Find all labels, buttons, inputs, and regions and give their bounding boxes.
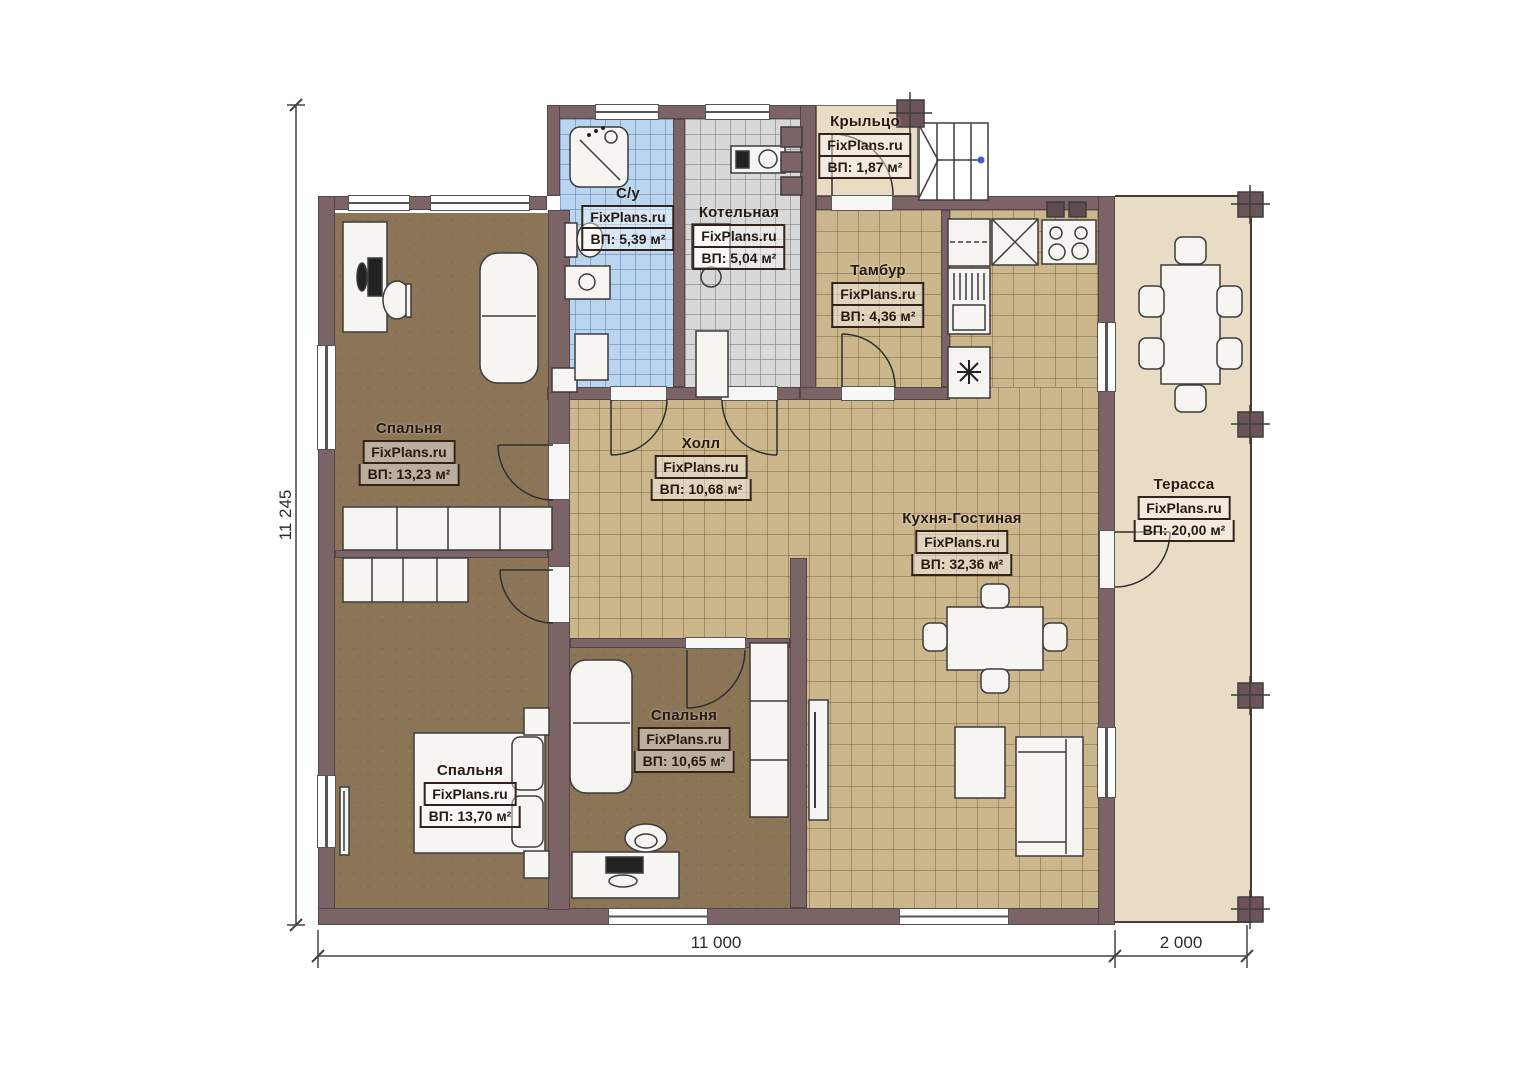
wall-annex-top [547, 105, 816, 119]
room-label-bedroom-mid: Спальня FixPlans.ru ВП: 10,65 м² [634, 707, 735, 773]
door-opening-terrace [1099, 530, 1115, 589]
stairs [919, 123, 988, 200]
room-name: Холл [682, 435, 720, 452]
dimension-width-terrace: 2 000 [1160, 933, 1203, 953]
room-area: ВП: 13,23 м² [359, 464, 460, 486]
room-label-vestibule: Тамбур FixPlans.ru ВП: 4,36 м² [831, 262, 924, 328]
room-area: ВП: 20,00 м² [1134, 520, 1235, 542]
dimension-width-main: 11 000 [691, 933, 742, 953]
brand-badge: FixPlans.ru [637, 727, 730, 751]
room-area: ВП: 1,87 м² [819, 157, 912, 179]
room-name: С/у [616, 185, 640, 202]
room-area: ВП: 10,65 м² [634, 751, 735, 773]
room-label-bathroom: С/у FixPlans.ru ВП: 5,39 м² [581, 185, 674, 251]
window-bottom-1 [608, 908, 708, 925]
window-top-1 [348, 195, 410, 211]
floor-plan: Крыльцо FixPlans.ru ВП: 1,87 м² С/у FixP… [0, 0, 1528, 1080]
window-right-1 [1097, 322, 1116, 392]
wall-bedroom-mid-top [570, 638, 790, 648]
room-area: ВП: 10,68 м² [651, 479, 752, 501]
room-label-porch: Крыльцо FixPlans.ru ВП: 1,87 м² [818, 113, 911, 179]
room-area: ВП: 5,04 м² [693, 248, 786, 270]
brand-badge: FixPlans.ru [423, 782, 516, 806]
wall-living-west [790, 558, 807, 908]
room-name: Спальня [651, 707, 717, 724]
window-annex-2 [705, 104, 770, 120]
room-name: Терасса [1154, 476, 1215, 493]
floor-bedroom-top [333, 213, 548, 550]
brand-badge: FixPlans.ru [1137, 496, 1230, 520]
floor-bedroom-bottom [333, 558, 548, 910]
room-name: Тамбур [850, 262, 906, 279]
wall-bedrooms-div [335, 550, 548, 558]
window-annex-1 [595, 104, 659, 120]
wall-vestibule-east [941, 210, 950, 387]
brand-badge: FixPlans.ru [654, 455, 747, 479]
room-name: Спальня [376, 420, 442, 437]
room-name: Спальня [437, 762, 503, 779]
door-opening-bedroom-mid [685, 637, 746, 649]
floor-bedroom-mid [568, 648, 790, 910]
room-area: ВП: 13,70 м² [420, 806, 521, 828]
door-opening-entrance [831, 195, 893, 211]
door-opening-bathroom [610, 386, 667, 401]
floor-bathroom [560, 119, 673, 387]
brand-badge: FixPlans.ru [362, 440, 455, 464]
room-name: Крыльцо [830, 113, 900, 130]
wall-bedrooms-east [548, 210, 570, 910]
room-label-hall: Холл FixPlans.ru ВП: 10,68 м² [651, 435, 752, 501]
room-area: ВП: 32,36 м² [912, 554, 1013, 576]
brand-badge: FixPlans.ru [831, 282, 924, 306]
room-name: Котельная [699, 204, 779, 221]
room-label-kitchen-living: Кухня-Гостиная FixPlans.ru ВП: 32,36 м² [902, 510, 1021, 576]
room-name: Кухня-Гостиная [902, 510, 1021, 527]
door-opening-boiler [721, 386, 778, 401]
wall-boiler-east [800, 105, 816, 400]
window-left-1 [317, 345, 336, 450]
window-left-2 [317, 775, 336, 848]
brand-badge: FixPlans.ru [581, 205, 674, 229]
room-area: ВП: 4,36 м² [832, 306, 925, 328]
window-bottom-2 [899, 908, 1009, 925]
window-top-2 [430, 195, 530, 211]
brand-badge: FixPlans.ru [818, 133, 911, 157]
door-opening-bedroom-bottom [548, 566, 570, 623]
window-right-2 [1097, 727, 1116, 798]
door-opening-bedroom-top [548, 443, 570, 500]
room-label-terrace: Терасса FixPlans.ru ВП: 20,00 м² [1134, 476, 1235, 542]
floor-terrace [1115, 196, 1251, 922]
brand-badge: FixPlans.ru [915, 530, 1008, 554]
room-area: ВП: 5,39 м² [582, 229, 675, 251]
door-opening-vestibule [841, 386, 895, 401]
dimension-height: 11 245 [276, 475, 296, 555]
floor-kitchen-strip [950, 210, 1100, 387]
room-label-bedroom-top: Спальня FixPlans.ru ВП: 13,23 м² [359, 420, 460, 486]
room-label-boiler: Котельная FixPlans.ru ВП: 5,04 м² [692, 204, 785, 270]
wall-annex-left [547, 105, 560, 196]
room-label-bedroom-bottom: Спальня FixPlans.ru ВП: 13,70 м² [420, 762, 521, 828]
brand-badge: FixPlans.ru [692, 224, 785, 248]
wall-bath-boiler-div [673, 119, 685, 387]
